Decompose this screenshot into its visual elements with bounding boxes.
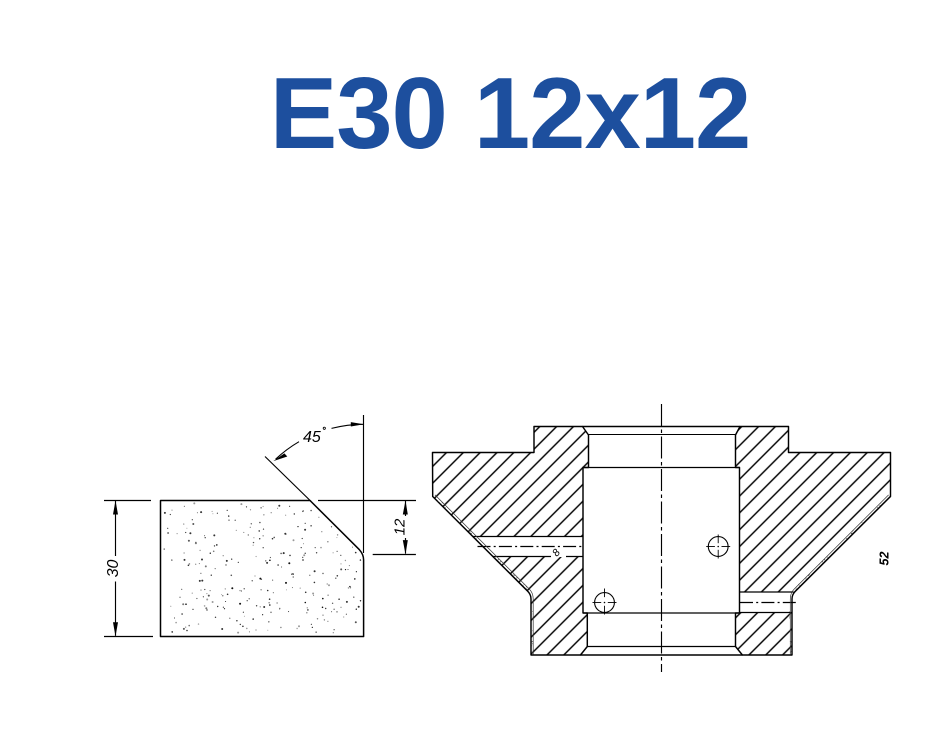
svg-text:45: 45 [303, 429, 321, 446]
svg-text:12: 12 [392, 518, 409, 535]
svg-text:E30 12x12: E30 12x12 [270, 57, 751, 170]
svg-text:30: 30 [105, 560, 122, 578]
svg-text:52: 52 [878, 552, 892, 566]
